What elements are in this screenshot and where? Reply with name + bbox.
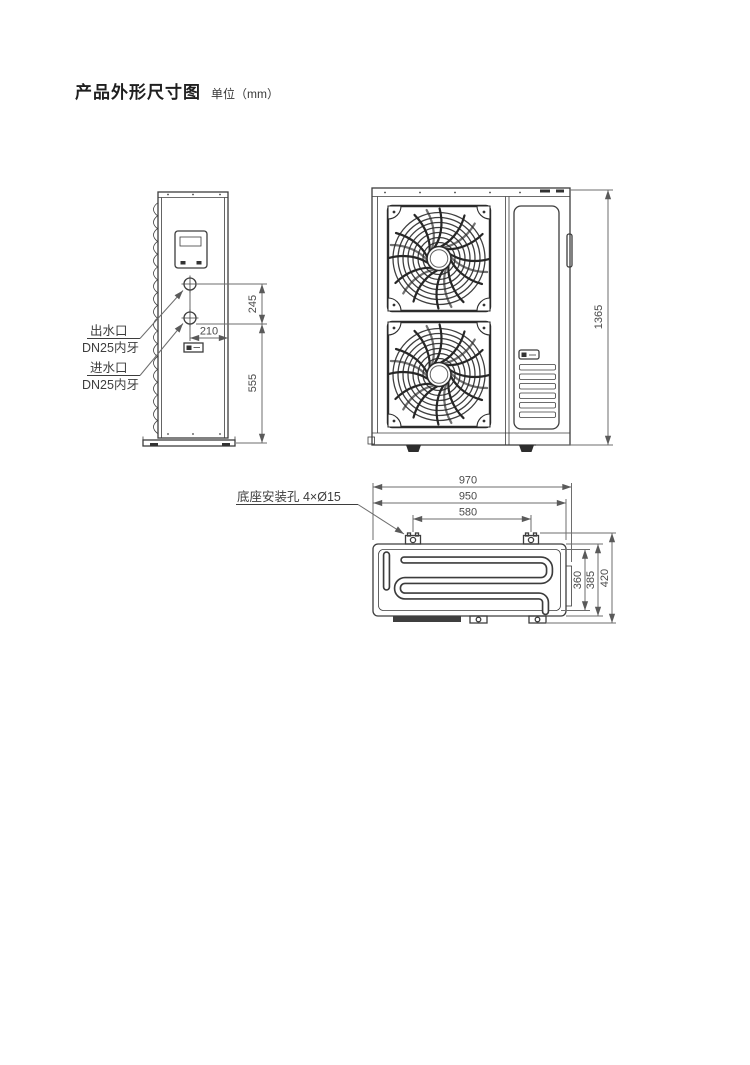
side-nameplate: [184, 343, 203, 352]
water-inlet-port: [182, 310, 199, 327]
mounting-bracket-right: [524, 533, 539, 544]
lower-fan-grille: [388, 322, 490, 427]
outlet-label: 出水口 DN25内牙: [82, 291, 183, 356]
side-control-panel: [175, 231, 207, 268]
base-foot-left: [470, 616, 487, 623]
bottom-width-dimensions: 970 950 580: [373, 475, 572, 563]
dim-text-245: 245: [247, 295, 259, 313]
mounting-hole-label-text: 底座安装孔 4×Ø15: [237, 489, 341, 504]
base-fin-band: [393, 616, 461, 622]
side-fan-grille-bumps: [154, 203, 158, 433]
inlet-label-line1: 进水口: [90, 361, 128, 375]
bottom-view: 970 950 580 底座安装孔 4×Ø15 360: [236, 475, 616, 624]
mounting-hole-leader-line: [358, 505, 404, 535]
upper-fan-grille: [388, 206, 490, 311]
dim-text-360: 360: [572, 571, 584, 589]
side-body: [158, 192, 228, 438]
outlet-label-line2: DN25内牙: [82, 341, 139, 355]
mounting-hole-label: 底座安装孔 4×Ø15: [236, 489, 404, 534]
dim-text-580: 580: [459, 507, 477, 519]
dim-text-970: 970: [459, 475, 477, 487]
water-outlet-port: [182, 276, 199, 293]
mounting-bracket-left: [406, 533, 421, 544]
dim-text-210: 210: [200, 326, 218, 338]
dimension-drawing-page: 产品外形尺寸图单位（mm）: [0, 0, 750, 1065]
base-serpentine-channel: [387, 555, 550, 612]
front-left-tab: [368, 437, 375, 444]
dim-text-1365: 1365: [593, 305, 605, 329]
base-foot-right: [529, 616, 546, 623]
dim-text-555: 555: [247, 374, 259, 392]
front-view: 1365: [368, 188, 613, 452]
drawing-canvas: 出水口 DN25内牙 进水口 DN25内牙 245 555: [0, 0, 750, 1065]
brand-badge: [519, 350, 539, 359]
front-dimension: 1365: [536, 190, 613, 445]
dim-text-420: 420: [599, 569, 611, 587]
side-view: 出水口 DN25内牙 进水口 DN25内牙 245 555: [82, 192, 267, 446]
base-right-bracket: [566, 566, 572, 606]
front-side-panel: [514, 206, 572, 429]
front-foot-right: [519, 445, 534, 452]
dim-text-950: 950: [459, 491, 477, 503]
inlet-label-line2: DN25内牙: [82, 378, 139, 392]
front-foot-left: [406, 445, 421, 452]
dim-text-385: 385: [585, 571, 597, 589]
outlet-label-line1: 出水口: [90, 324, 128, 338]
vent-slats: [520, 365, 556, 418]
